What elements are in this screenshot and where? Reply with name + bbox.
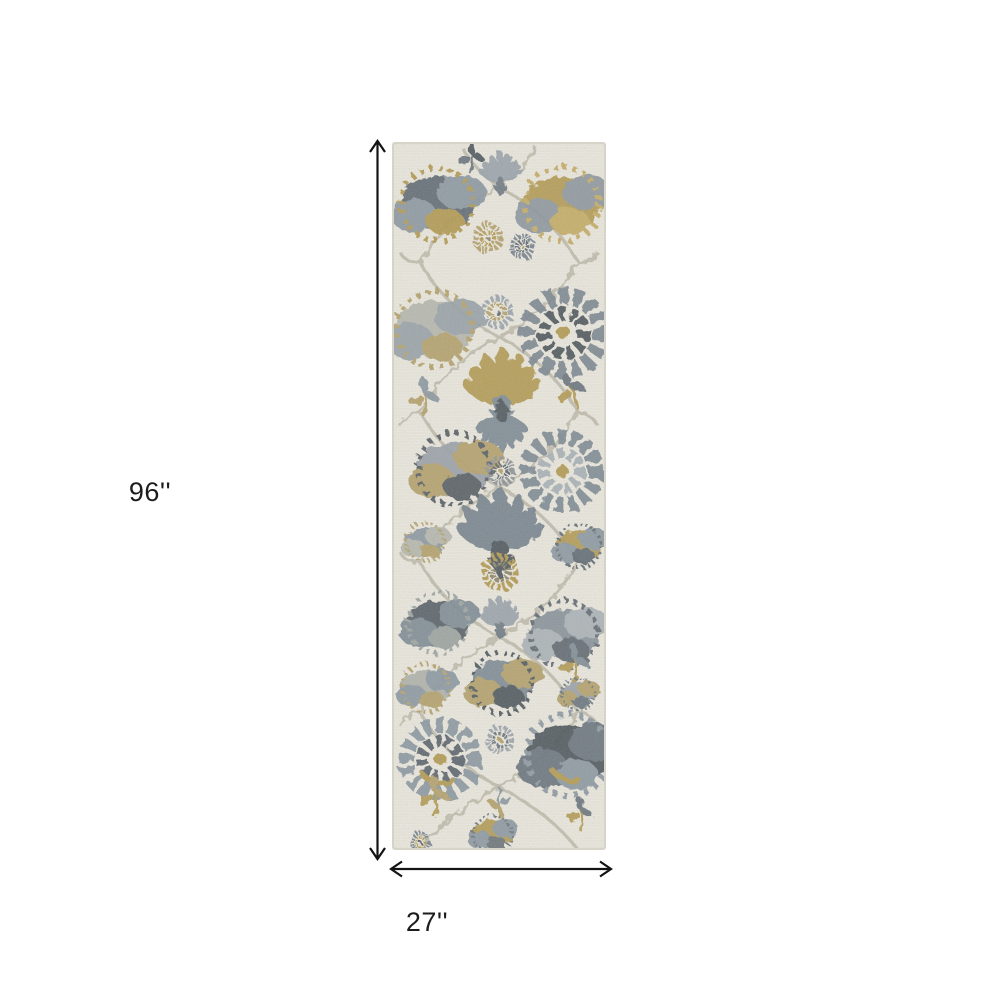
height-dimension-arrow [365, 137, 391, 863]
rug-image [392, 142, 606, 850]
product-dimension-diagram: 96'' 27'' [0, 0, 1000, 1000]
width-dimension-arrow [387, 856, 615, 882]
height-label: 96'' [106, 477, 194, 507]
width-label: 27'' [383, 907, 471, 937]
